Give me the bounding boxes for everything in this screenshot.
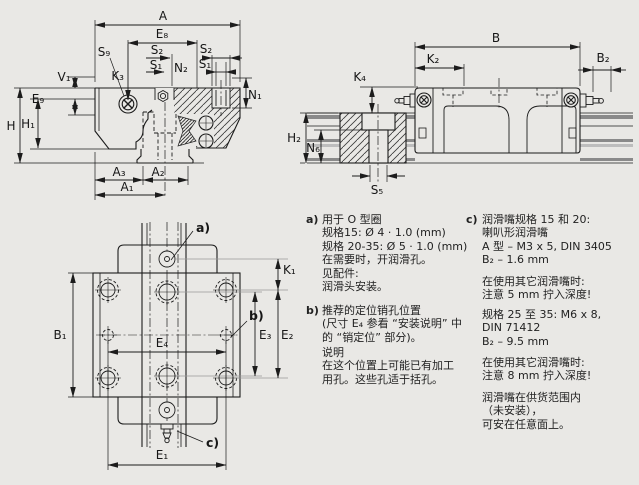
dim-label-A: A [159,9,168,23]
dim-label-S9: S₉ [98,45,111,59]
dim-label-E1: E₁ [156,448,169,462]
dim-label-N6: N₆ [306,141,320,155]
plan-view: a) b) c) B₁ K₁ E₃ E₂ E₄ E₁ [53,220,295,470]
dim-label-K4: K₄ [353,70,366,84]
note-c-para3: 规格 25 至 35: M6 x 8, DIN 71412 B₂ – 9.5 m… [482,308,601,348]
technical-drawing-page: A E₈ S₂ S₁ N₂ S₂ S₁ N₁ S₉ K₃ V₁ E₉ H₁ H … [0,0,639,485]
note-b-para1: 推荐的定位销孔位置 (尺寸 E₄ 参看 “安装说明” 中 的 “销定位” 部分)… [322,304,462,344]
cross-section-view: A E₈ S₂ S₁ N₂ S₂ S₁ N₁ S₉ K₃ V₁ E₉ H₁ H … [6,9,261,200]
note-c-para2: 在使用其它润滑嘴时: 注意 5 mm 拧入深度! [482,275,591,302]
dim-label-S5: S₅ [371,183,384,197]
leader-lines [171,231,247,442]
dim-label-S2-mid: S₂ [151,43,164,57]
grease-nipple-plan [161,424,173,443]
dim-label-S1-mid: S₁ [150,58,163,72]
dim-label-K3: K₃ [111,69,124,83]
dim-label-N2: N₂ [174,61,188,75]
dim-label-N1: N₁ [248,88,262,102]
dim-label-E3: E₃ [259,328,272,342]
carriage-plan [93,245,240,424]
dim-label-E4: E₄ [156,336,169,350]
leader-label-b: b) [249,308,264,323]
leader-label-a: a) [196,220,210,235]
note-c-para4: 在使用其它润滑嘴时: 注意 8 mm 拧入深度! [482,356,591,383]
note-a-marker: a) [306,213,318,226]
note-a-text: 用于 O 型圈 规格15: Ø 4 · 1.0 (mm) 规格 20-35: Ø… [322,213,467,293]
dim-label-K1: K₁ [283,263,296,277]
grease-nipple-right [580,94,603,107]
ball-lower [199,134,213,148]
n2-lube-screw [155,88,174,102]
note-b-para2: 说明 在这个位置上可能已有加工 用孔。这些孔适于括孔。 [322,346,454,386]
dim-label-H: H [6,119,15,133]
dim-label-H2: H₂ [287,131,301,145]
side-view: B K₂ B₂ K₄ H₂ N₆ S₅ [287,31,633,197]
note-c-para1: 润滑嘴规格 15 和 20: 喇叭形润滑嘴 A 型 – M3 x 5, DIN … [482,213,612,267]
dim-label-S1-right: S₁ [199,57,212,71]
dim-label-B1: B₁ [53,328,66,342]
dim-label-B: B [492,31,500,45]
dim-label-E2: E₂ [281,328,294,342]
dim-label-A2: A₂ [151,165,164,179]
note-c-para5: 润滑嘴在供货范围内 （未安装）， 可安在任意面上。 [482,391,581,431]
dim-label-E8: E₈ [156,27,169,41]
top-hole-hidden-lines [443,88,557,107]
grease-port-left [417,93,431,107]
grease-port-right [564,93,578,107]
dim-label-S2-right: S₂ [200,42,213,56]
dim-label-B2: B₂ [596,51,609,65]
carriage-side [395,78,604,153]
dim-label-A1: A₁ [120,180,133,194]
dim-label-H1: H₁ [21,117,35,131]
rail-bolt-section [340,104,406,183]
note-b-marker: b) [306,304,319,317]
dim-label-E9: E₉ [32,92,45,106]
dim-label-K2: K₂ [427,52,440,66]
note-c-marker: c) [466,213,478,226]
dim-label-A3: A₃ [112,165,125,179]
dim-label-V1: V₁ [57,70,70,84]
ball-upper [199,116,213,130]
leader-label-c: c) [206,435,219,450]
end-seal-arch-left [444,106,509,153]
grease-nipple-left [395,94,415,107]
